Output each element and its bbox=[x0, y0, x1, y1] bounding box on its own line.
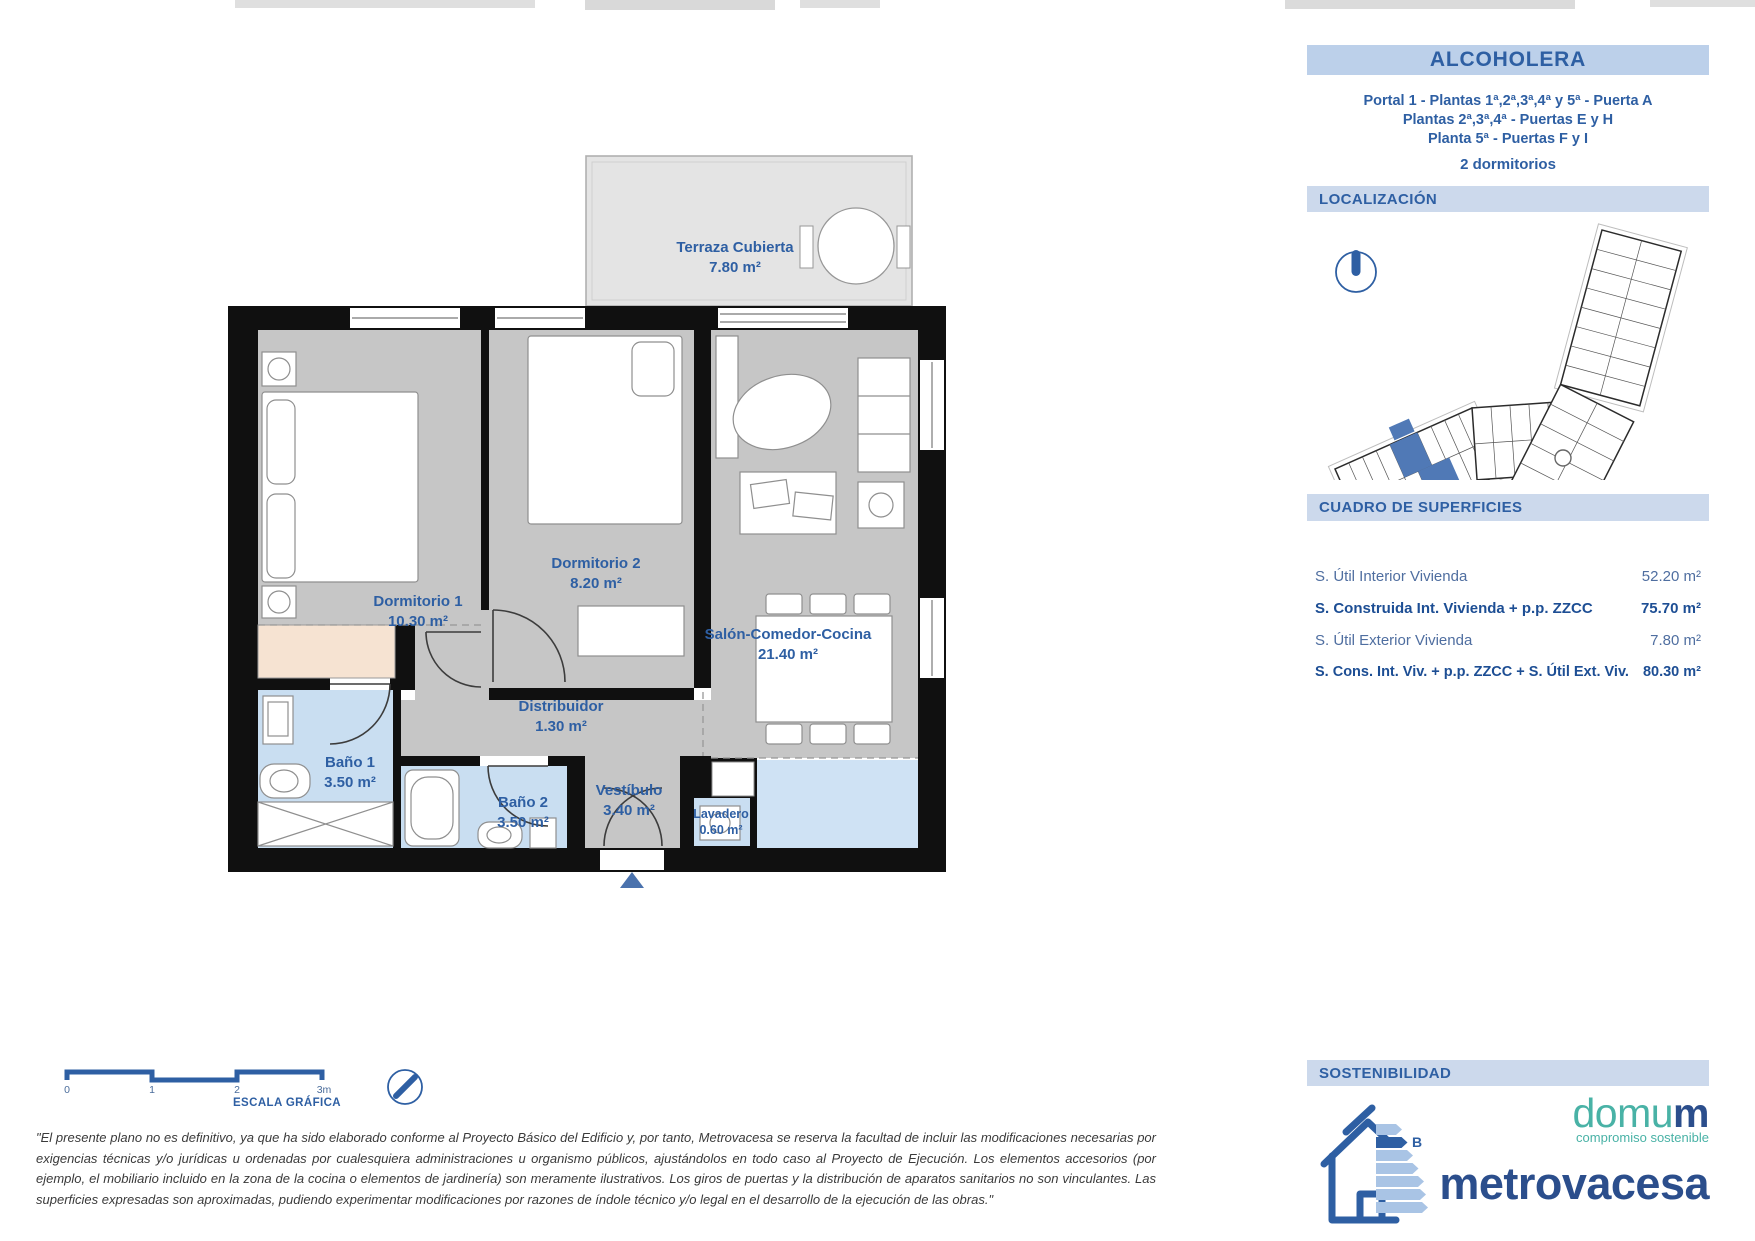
superficies-bar: CUADRO DE SUPERFICIES bbox=[1307, 494, 1709, 521]
chair bbox=[766, 724, 802, 744]
room-name: Baño 2 bbox=[497, 793, 549, 813]
terrace-table bbox=[818, 208, 894, 284]
room-label-dorm1: Dormitorio 1 10.30 m² bbox=[373, 592, 462, 631]
scale-tick: 3m bbox=[317, 1084, 332, 1096]
energy-rating-letter: B bbox=[1412, 1134, 1422, 1150]
scale-tick: 2 bbox=[234, 1084, 240, 1096]
room-area: 0.60 m² bbox=[693, 822, 749, 838]
map-compass-icon bbox=[1336, 250, 1376, 292]
domum-logo: domum compromiso sostenible bbox=[1450, 1092, 1709, 1145]
floor-kitchen bbox=[757, 760, 918, 848]
portal-line: Plantas 2ª,3ª,4ª - Puertas E y H bbox=[1307, 111, 1709, 130]
cushion bbox=[793, 492, 833, 520]
superficies-row: S. Cons. Int. Viv. + p.p. ZZCC + S. Útil… bbox=[1307, 656, 1709, 688]
floor-door-gap bbox=[481, 610, 489, 628]
scale-caption: ESCALA GRÁFICA bbox=[233, 1097, 341, 1109]
room-label-bano1: Baño 1 3.50 m² bbox=[324, 753, 376, 792]
plan-compass-icon bbox=[388, 1070, 422, 1104]
nightstand bbox=[262, 352, 296, 386]
bathtub bbox=[405, 770, 459, 846]
portal-line: Portal 1 - Plantas 1ª,2ª,3ª,4ª y 5ª - Pu… bbox=[1307, 92, 1709, 111]
sofa bbox=[858, 358, 910, 472]
sostenibilidad-title: SOSTENIBILIDAD bbox=[1319, 1065, 1451, 1082]
building-b bbox=[1506, 219, 1687, 480]
room-name: Dormitorio 2 bbox=[551, 554, 640, 574]
room-name: Distribuidor bbox=[519, 697, 604, 717]
surface-label: S. Cons. Int. Viv. + p.p. ZZCC + S. Útil… bbox=[1315, 664, 1629, 680]
room-label-dorm2: Dormitorio 2 8.20 m² bbox=[551, 554, 640, 593]
room-area: 10.30 m² bbox=[373, 612, 462, 632]
room-area: 8.20 m² bbox=[551, 574, 640, 594]
room-name: Dormitorio 1 bbox=[373, 592, 462, 612]
surface-value: 52.20 m² bbox=[1642, 568, 1701, 585]
room-label-lavadero: Lavadero 0.60 m² bbox=[693, 806, 749, 838]
portal-line: Planta 5ª - Puertas F y I bbox=[1307, 130, 1709, 149]
entrance-opening bbox=[600, 850, 664, 870]
domum-tagline: compromiso sostenible bbox=[1450, 1131, 1709, 1145]
brochure-page: Terraza Cubierta 7.80 m² Dormitorio 1 10… bbox=[0, 0, 1755, 1241]
room-label-distribuidor: Distribuidor 1.30 m² bbox=[519, 697, 604, 736]
terrace-chair bbox=[897, 226, 910, 268]
room-name: Lavadero bbox=[693, 806, 749, 822]
room-area: 3.40 m² bbox=[596, 801, 663, 821]
pillow bbox=[632, 342, 674, 396]
armchair bbox=[858, 482, 904, 528]
closet bbox=[716, 336, 738, 458]
pillow bbox=[267, 494, 295, 578]
terrace bbox=[586, 156, 912, 306]
room-name: Baño 1 bbox=[324, 753, 376, 773]
surface-label: S. Construida Int. Vivienda + p.p. ZZCC bbox=[1315, 600, 1593, 617]
chair bbox=[810, 594, 846, 614]
scale-tick: 0 bbox=[64, 1084, 70, 1096]
chair bbox=[810, 724, 846, 744]
desk bbox=[578, 606, 684, 656]
surface-value: 75.70 m² bbox=[1641, 600, 1701, 617]
kitchen-niche bbox=[712, 762, 754, 796]
legal-disclaimer: "El presente plano no es definitivo, ya … bbox=[36, 1128, 1156, 1210]
superficies-table: S. Útil Interior Vivienda 52.20 m² S. Co… bbox=[1307, 560, 1709, 688]
superficies-title: CUADRO DE SUPERFICIES bbox=[1319, 499, 1522, 516]
scale-bar bbox=[67, 1072, 322, 1080]
entrance-marker bbox=[620, 872, 644, 888]
room-name: Vestíbulo bbox=[596, 781, 663, 801]
room-area: 3.50 m² bbox=[324, 773, 376, 793]
localizacion-title: LOCALIZACIÓN bbox=[1319, 191, 1437, 208]
project-title: ALCOHOLERA bbox=[1430, 48, 1586, 72]
surface-label: S. Útil Exterior Vivienda bbox=[1315, 632, 1472, 649]
superficies-row: S. Útil Exterior Vivienda 7.80 m² bbox=[1307, 624, 1709, 656]
sostenibilidad-bar: SOSTENIBILIDAD bbox=[1307, 1060, 1709, 1086]
cushion bbox=[751, 480, 790, 509]
room-area: 21.40 m² bbox=[705, 645, 872, 665]
pillow bbox=[267, 400, 295, 484]
room-label-salon: Salón-Comedor-Cocina 21.40 m² bbox=[705, 625, 872, 664]
bedrooms-label: 2 dormitorios bbox=[1307, 155, 1709, 174]
room-area: 3.50 m² bbox=[497, 813, 549, 833]
floor-wardrobe bbox=[258, 625, 395, 678]
room-label-bano2: Baño 2 3.50 m² bbox=[497, 793, 549, 832]
room-name: Terraza Cubierta bbox=[676, 238, 793, 258]
superficies-row: S. Útil Interior Vivienda 52.20 m² bbox=[1307, 560, 1709, 592]
surface-label: S. Útil Interior Vivienda bbox=[1315, 568, 1467, 585]
room-label-terraza: Terraza Cubierta 7.80 m² bbox=[676, 238, 793, 277]
terrace-chair bbox=[800, 226, 813, 268]
localizacion-bar: LOCALIZACIÓN bbox=[1307, 186, 1709, 212]
room-label-vestibulo: Vestíbulo 3.40 m² bbox=[596, 781, 663, 820]
toilet bbox=[260, 764, 310, 798]
location-map bbox=[1300, 214, 1750, 480]
surface-value: 7.80 m² bbox=[1650, 632, 1701, 649]
chair bbox=[766, 594, 802, 614]
superficies-row: S. Construida Int. Vivienda + p.p. ZZCC … bbox=[1307, 592, 1709, 624]
surface-value: 80.30 m² bbox=[1643, 664, 1701, 680]
portal-info: Portal 1 - Plantas 1ª,2ª,3ª,4ª y 5ª - Pu… bbox=[1307, 92, 1709, 149]
room-name: Salón-Comedor-Cocina bbox=[705, 625, 872, 645]
room-area: 1.30 m² bbox=[519, 717, 604, 737]
metrovacesa-logo: metrovacesa bbox=[1380, 1158, 1709, 1210]
room-area: 7.80 m² bbox=[676, 258, 793, 278]
map-marker bbox=[1555, 450, 1571, 466]
chair bbox=[854, 724, 890, 744]
scale-tick: 1 bbox=[149, 1084, 155, 1096]
project-title-bar: ALCOHOLERA bbox=[1307, 45, 1709, 75]
chair bbox=[854, 594, 890, 614]
